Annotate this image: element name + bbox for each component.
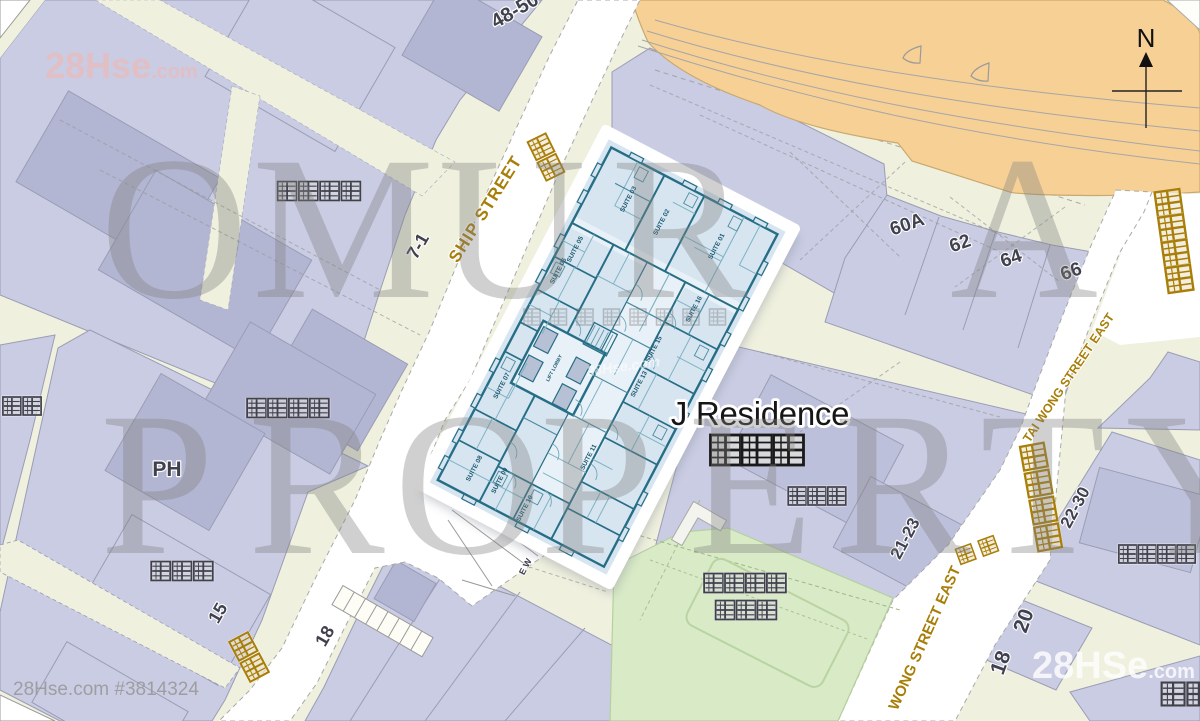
svg-text:T: T	[980, 371, 1105, 598]
svg-text:R: R	[248, 371, 385, 598]
svg-text:R: R	[611, 115, 748, 342]
svg-text:M: M	[252, 115, 434, 342]
svg-text:Y: Y	[1126, 371, 1200, 598]
svg-text:P: P	[540, 371, 654, 598]
svg-text:N: N	[1137, 23, 1156, 53]
svg-text:U: U	[438, 115, 586, 342]
svg-text:28Hse.com #3814324: 28Hse.com #3814324	[13, 679, 199, 700]
svg-text:O: O	[394, 371, 542, 598]
svg-text:O: O	[100, 115, 248, 342]
svg-text:R: R	[834, 371, 971, 598]
svg-text:P: P	[100, 371, 214, 598]
svg-text:A: A	[950, 115, 1098, 342]
svg-text:E: E	[688, 371, 813, 598]
